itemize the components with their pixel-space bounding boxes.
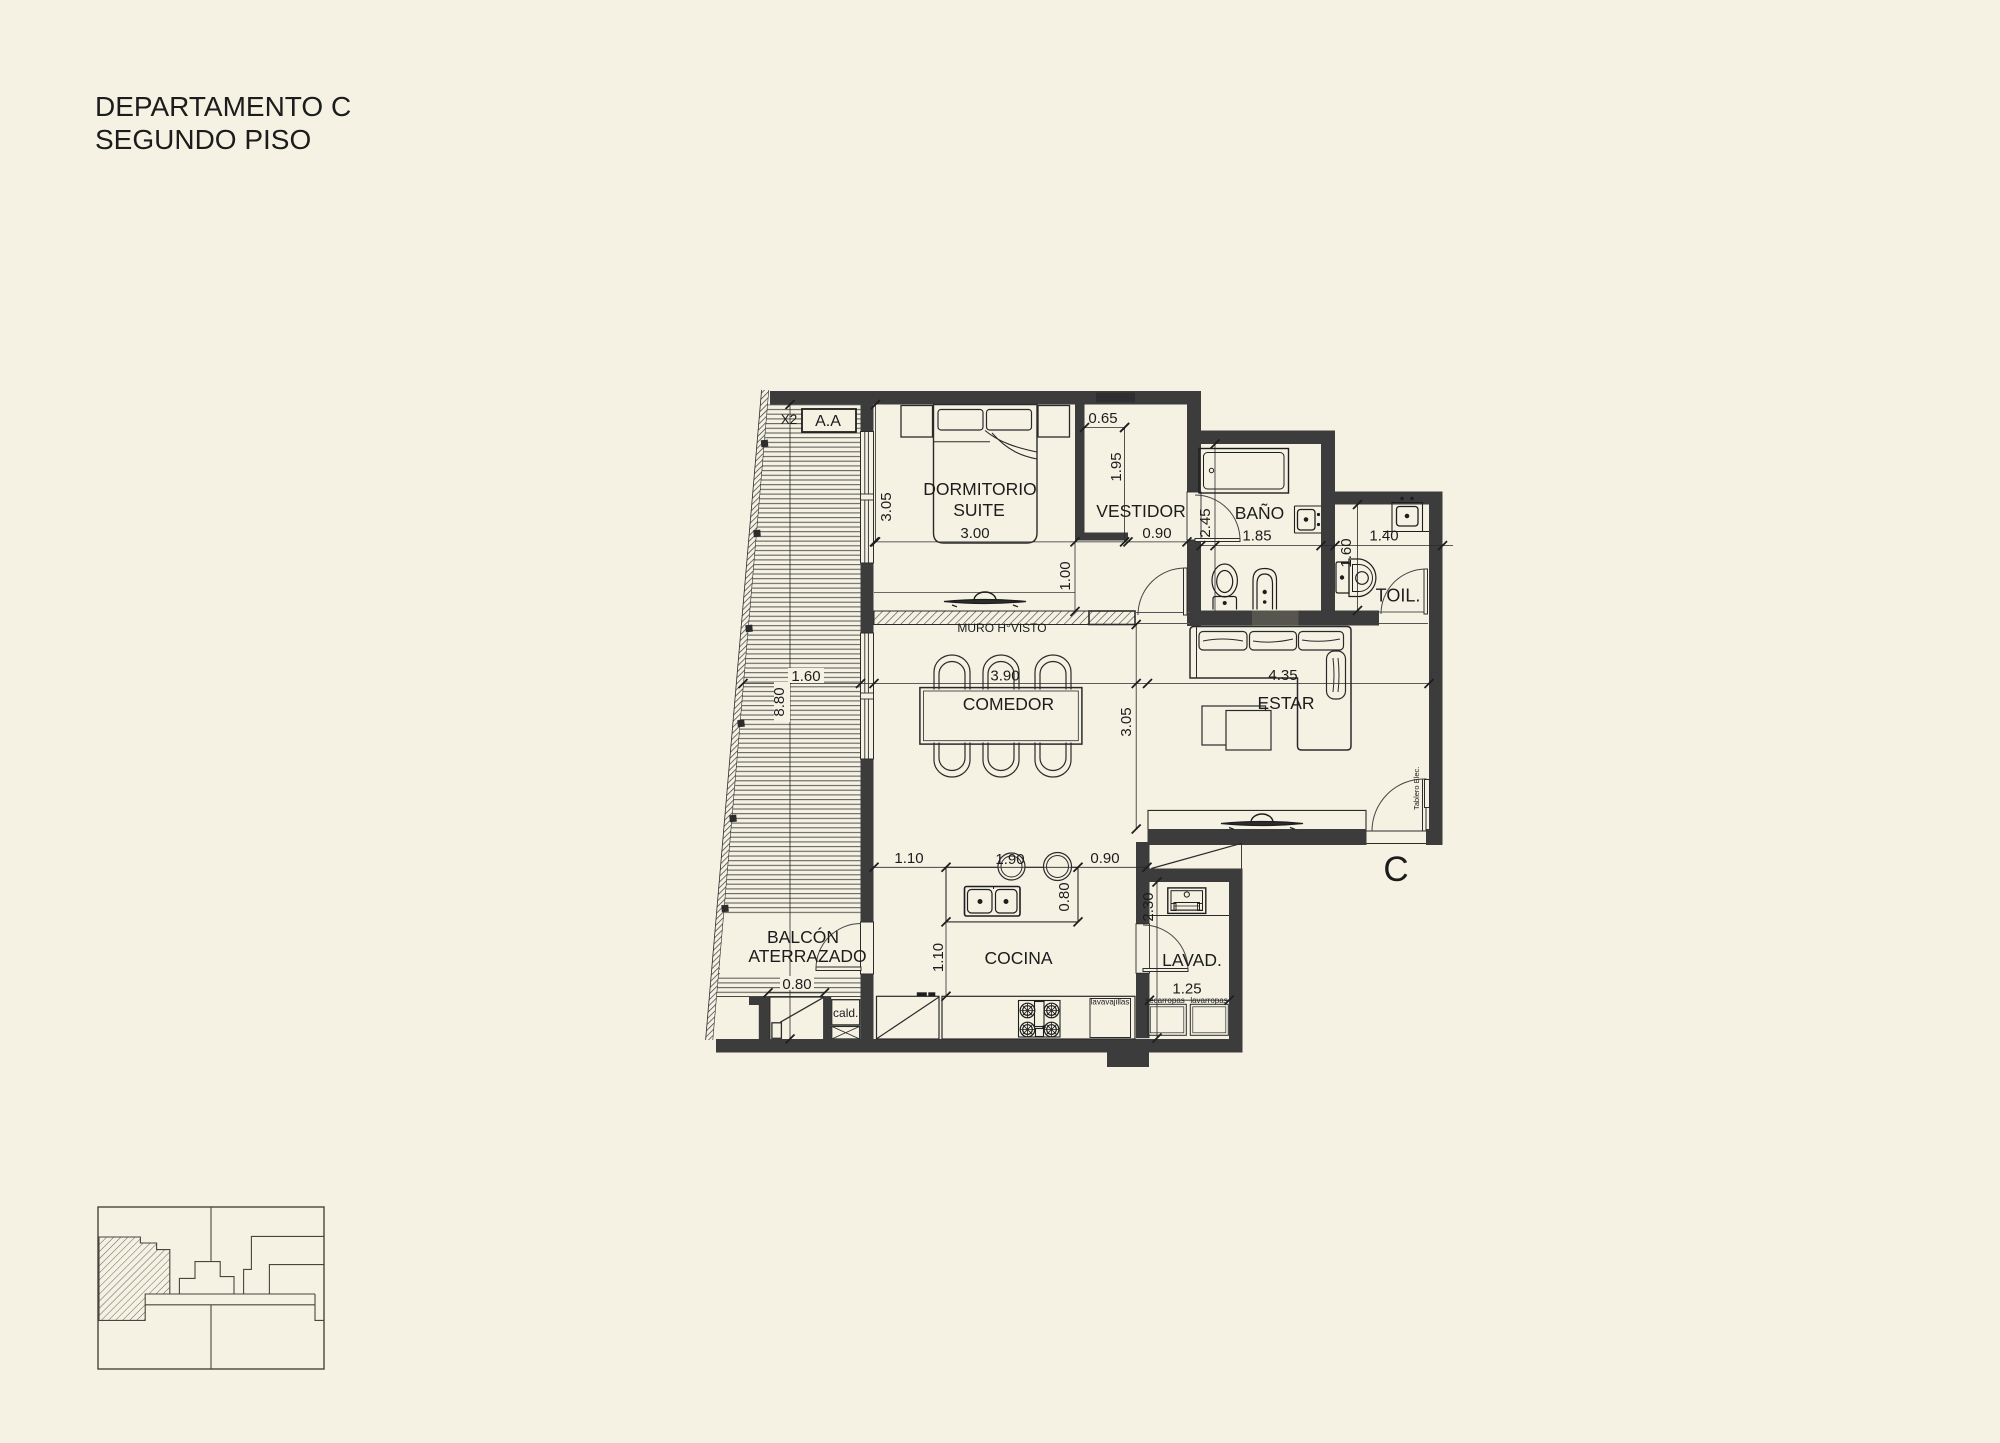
svg-text:2.30: 2.30 <box>1140 892 1157 921</box>
svg-text:1.10: 1.10 <box>894 850 923 867</box>
svg-text:1.90: 1.90 <box>995 851 1024 868</box>
svg-text:1.10: 1.10 <box>930 943 947 972</box>
svg-text:COCINA: COCINA <box>984 948 1052 968</box>
svg-text:ESTAR: ESTAR <box>1257 693 1314 713</box>
svg-text:1.00: 1.00 <box>1057 561 1074 590</box>
svg-text:1.25: 1.25 <box>1172 981 1201 998</box>
svg-text:SUITE: SUITE <box>953 500 1005 520</box>
svg-text:8.80: 8.80 <box>771 687 788 716</box>
svg-text:MURO H°VISTO: MURO H°VISTO <box>957 621 1046 635</box>
svg-text:1.95: 1.95 <box>1108 452 1125 481</box>
svg-text:X2: X2 <box>781 412 798 427</box>
svg-text:ATERRAZADO: ATERRAZADO <box>748 946 866 966</box>
svg-text:BALCÓN: BALCÓN <box>767 926 839 947</box>
svg-text:SEGUNDO PISO: SEGUNDO PISO <box>95 124 311 155</box>
svg-text:VESTIDOR: VESTIDOR <box>1096 501 1185 521</box>
svg-text:A.A: A.A <box>815 413 841 430</box>
svg-text:DEPARTAMENTO C: DEPARTAMENTO C <box>95 91 351 122</box>
svg-text:cald.: cald. <box>833 1006 858 1020</box>
svg-text:DORMITORIO: DORMITORIO <box>923 479 1036 499</box>
svg-text:C: C <box>1383 850 1408 889</box>
svg-text:4.35: 4.35 <box>1268 667 1297 684</box>
svg-text:lavavajillas: lavavajillas <box>1091 998 1130 1007</box>
svg-text:2.45: 2.45 <box>1197 508 1214 537</box>
svg-text:1.40: 1.40 <box>1369 528 1398 545</box>
svg-text:0.65: 0.65 <box>1088 410 1117 427</box>
svg-text:Tablero Elec.: Tablero Elec. <box>1412 767 1421 810</box>
svg-text:BAÑO: BAÑO <box>1235 502 1285 523</box>
svg-text:0.80: 0.80 <box>1056 882 1073 911</box>
svg-text:LAVAD.: LAVAD. <box>1162 950 1222 970</box>
svg-text:COMEDOR: COMEDOR <box>963 694 1054 714</box>
svg-text:3.05: 3.05 <box>878 492 895 521</box>
svg-text:TOIL.: TOIL. <box>1376 586 1421 606</box>
svg-text:0.80: 0.80 <box>782 976 811 993</box>
svg-text:3.05: 3.05 <box>1118 707 1135 736</box>
svg-text:1.85: 1.85 <box>1242 528 1271 545</box>
svg-text:0.90: 0.90 <box>1142 525 1171 542</box>
svg-text:3.90: 3.90 <box>990 668 1019 685</box>
svg-text:3.00: 3.00 <box>960 525 989 542</box>
svg-text:0.90: 0.90 <box>1090 850 1119 867</box>
svg-text:1.60: 1.60 <box>791 668 820 685</box>
svg-text:1.60: 1.60 <box>1338 538 1355 567</box>
